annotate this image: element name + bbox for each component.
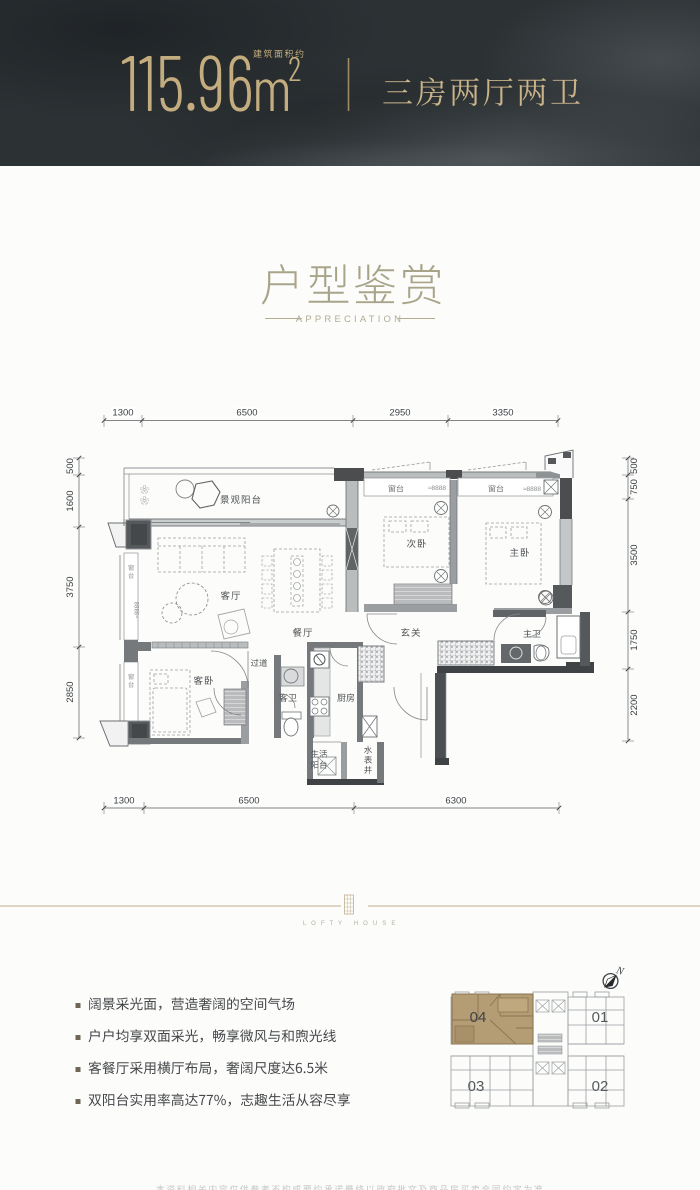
svg-text:03: 03 [468, 1078, 485, 1095]
svg-text:1600: 1600 [65, 490, 76, 511]
svg-text:750: 750 [629, 479, 640, 495]
svg-text:6500: 6500 [236, 408, 257, 419]
svg-text:02: 02 [592, 1078, 609, 1095]
svg-text:3350: 3350 [492, 408, 513, 419]
svg-text:2850: 2850 [65, 681, 76, 702]
svg-text:500: 500 [629, 458, 640, 474]
svg-text:APPRECIATION: APPRECIATION [296, 314, 404, 325]
svg-text:1300: 1300 [113, 796, 134, 807]
svg-text:1300: 1300 [112, 408, 133, 419]
svg-text:3500: 3500 [629, 544, 640, 565]
svg-text:500: 500 [65, 458, 76, 474]
svg-text:≈8888: ≈8888 [135, 601, 141, 618]
svg-text:2200: 2200 [629, 694, 640, 715]
svg-text:≈8888: ≈8888 [523, 486, 541, 493]
svg-text:04: 04 [470, 1009, 487, 1026]
svg-text:3750: 3750 [65, 576, 76, 597]
svg-text:6300: 6300 [445, 796, 466, 807]
svg-text:1750: 1750 [629, 629, 640, 650]
svg-text:6500: 6500 [238, 796, 259, 807]
svg-text:L O F T Y H O U S E: L O F T Y H O U S E [303, 921, 397, 927]
svg-text:01: 01 [592, 1009, 609, 1026]
svg-text:2950: 2950 [389, 408, 410, 419]
svg-text:≈8888: ≈8888 [428, 485, 446, 492]
